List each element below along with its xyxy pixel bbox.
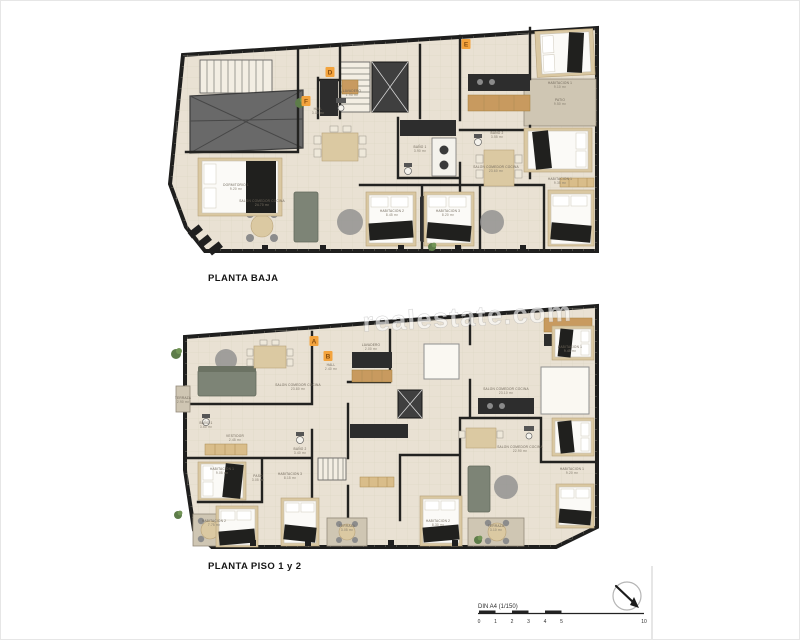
svg-text:10: 10 xyxy=(641,619,647,625)
unit-marker-b: B xyxy=(324,351,333,361)
svg-text:4: 4 xyxy=(544,619,547,625)
toilet-icon xyxy=(474,134,482,146)
room-label: BAÑO 23.40 m² xyxy=(294,446,307,455)
room-label: PATIO9.50 m² xyxy=(554,98,566,106)
plant-icon xyxy=(174,511,182,519)
floor-plan-drawing: D E F SALON COMEDOR COCINA24.70 m² DORMI… xyxy=(0,0,800,640)
bed xyxy=(366,192,416,246)
floor-plan-sheet: D E F SALON COMEDOR COCINA24.70 m² DORMI… xyxy=(0,0,800,640)
toilet-icon xyxy=(296,432,304,444)
svg-text:D: D xyxy=(328,69,333,76)
svg-text:2: 2 xyxy=(511,619,514,625)
svg-text:1: 1 xyxy=(494,619,497,625)
room-label: BAÑO 23.55 m² xyxy=(491,130,504,139)
svg-text:3: 3 xyxy=(527,619,530,625)
north-arrow-icon xyxy=(613,582,641,610)
room-label: BAÑO 13.60 m² xyxy=(200,420,213,429)
svg-text:B: B xyxy=(326,353,331,360)
unit-marker-e: E xyxy=(462,39,471,49)
svg-text:5: 5 xyxy=(560,619,563,625)
bed xyxy=(424,192,474,246)
bed xyxy=(552,326,594,360)
floor-plan-planta-baja: D E F SALON COMEDOR COCINA24.70 m² DORMI… xyxy=(165,25,605,255)
plan-title-planta-piso: PLANTA PISO 1 y 2 xyxy=(208,561,301,572)
scale-label: DIN A4 (1/150) xyxy=(478,604,518,610)
plan-title-planta-baja: PLANTA BAJA xyxy=(208,273,278,284)
bed xyxy=(281,498,319,546)
unit-marker-a: A xyxy=(310,336,319,346)
svg-text:E: E xyxy=(464,41,469,48)
room-label: BAÑO 13.90 m² xyxy=(414,144,427,153)
plant-icon xyxy=(171,348,182,359)
unit-marker-d: D xyxy=(326,67,335,77)
bed xyxy=(552,418,594,456)
bed xyxy=(535,29,595,78)
room-label: HALL3.10 m² xyxy=(312,107,324,115)
toilet-icon xyxy=(404,163,412,175)
svg-text:A: A xyxy=(312,338,317,345)
floor-plan-planta-piso: A B SALON COMEDOR COCINA23.80 m² TERRAZA… xyxy=(171,300,605,555)
svg-text:F: F xyxy=(304,98,308,105)
bed xyxy=(548,190,594,246)
bed xyxy=(556,484,594,528)
bed xyxy=(524,128,592,172)
unit-marker-f: F xyxy=(302,96,311,106)
room-label: HALL2.40 m² xyxy=(325,363,337,371)
room-label: PASO3.05 m² xyxy=(252,474,264,482)
svg-text:0: 0 xyxy=(478,619,481,625)
